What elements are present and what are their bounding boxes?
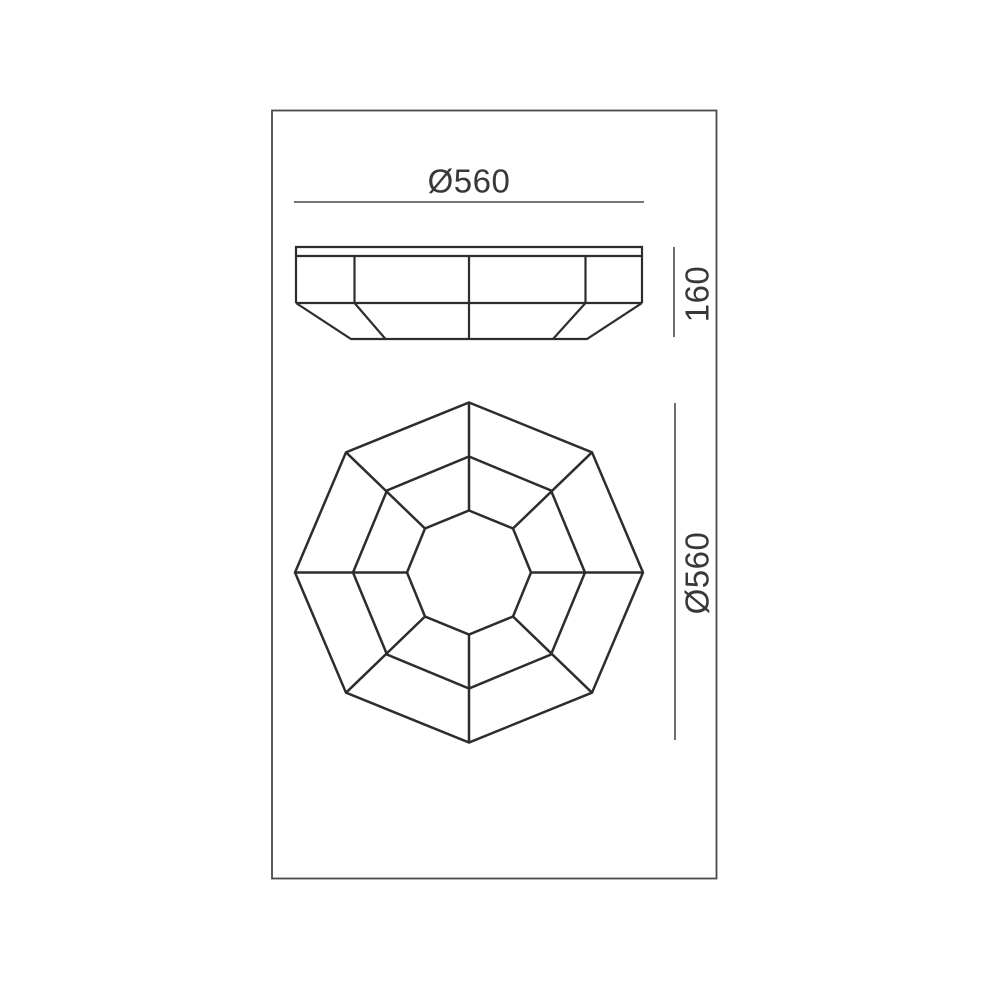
facet-spokes [295, 403, 643, 743]
bowl-facet-edges [355, 303, 586, 339]
drawing-svg [0, 0, 990, 990]
ceiling-plate [296, 247, 642, 256]
dimension-label-overall-height: 160 [681, 266, 714, 323]
dimension-label-plan-diameter: Ø560 [681, 532, 714, 615]
diagram-frame [272, 111, 717, 879]
rim-band-facet-edges [355, 256, 586, 303]
product-dimension-diagram: Ø560 160 Ø560 [0, 0, 990, 990]
inner-octagon [407, 511, 531, 635]
dimension-label-overall-diameter: Ø560 [428, 165, 511, 198]
